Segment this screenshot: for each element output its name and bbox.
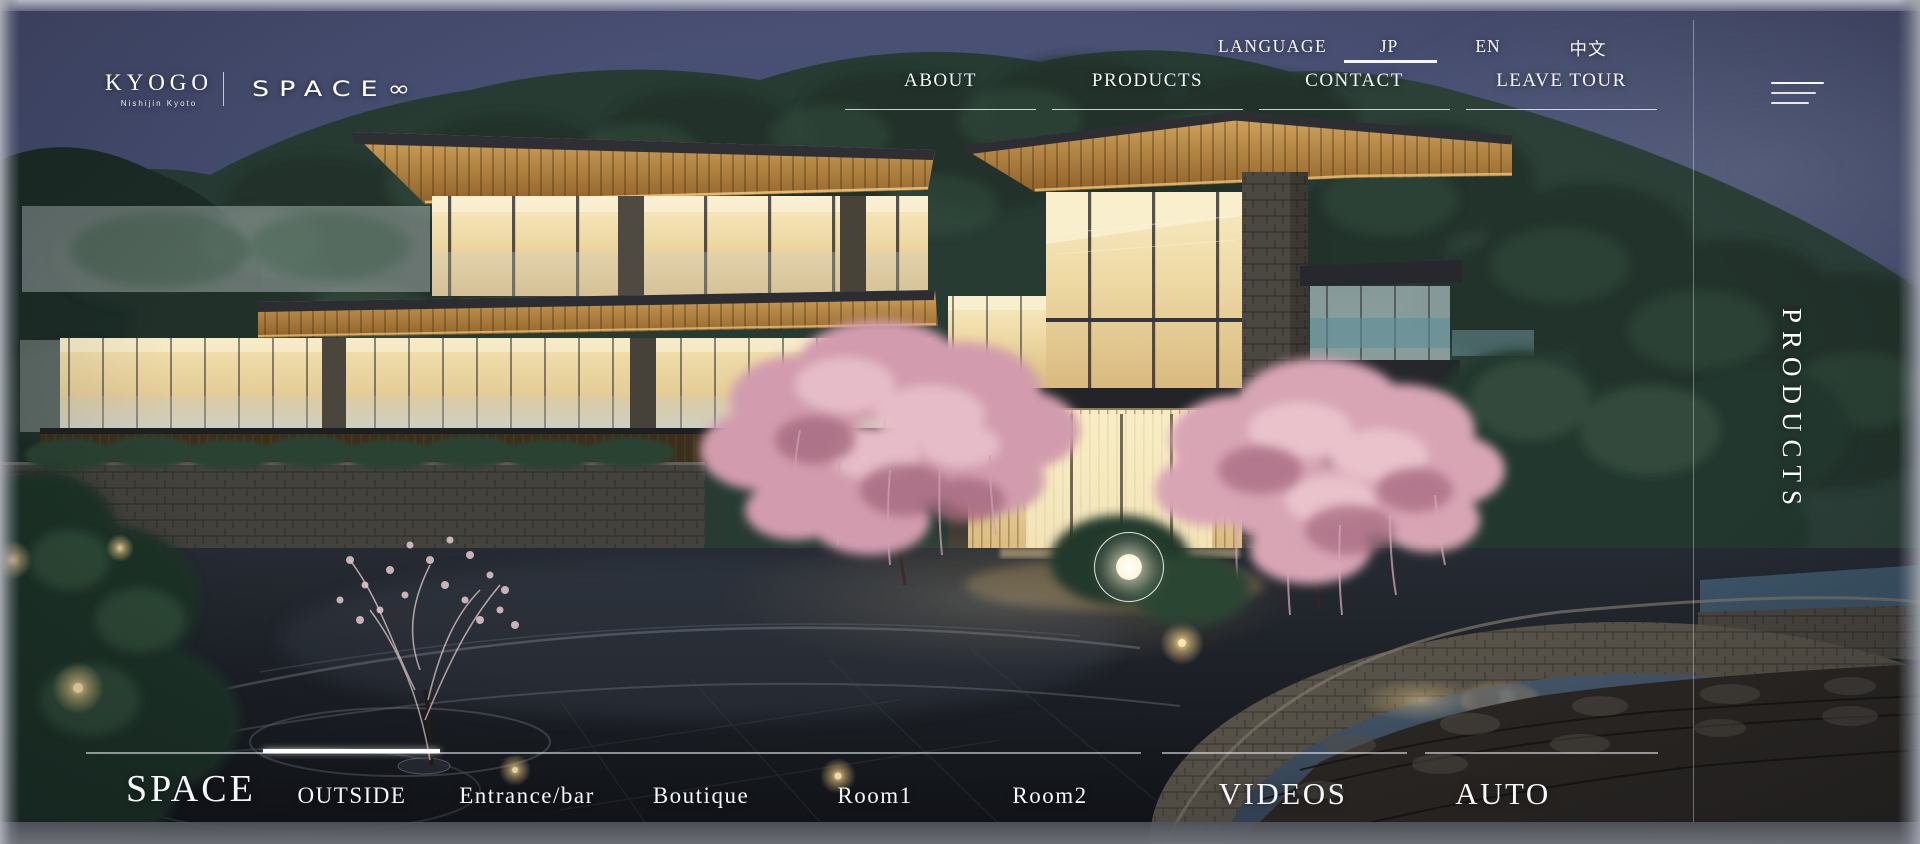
nav-item-contact[interactable]: CONTACT [1259, 70, 1450, 110]
main-nav: ABOUT PRODUCTS CONTACT LEAVE TOUR [845, 70, 1657, 110]
frame-right-edge [1898, 0, 1920, 844]
language-label: LANGUAGE [1218, 36, 1327, 57]
kyogo-logo: KYOGO [104, 70, 214, 96]
bottom-rule [1162, 752, 1407, 754]
menu-icon[interactable] [1771, 82, 1824, 112]
language-option-zh[interactable]: 中文 [1570, 36, 1607, 61]
bottom-nav-space[interactable]: SPACE [126, 767, 256, 811]
bottom-nav-videos[interactable]: VIDEOS [1219, 776, 1348, 812]
nav-item-about[interactable]: ABOUT [845, 70, 1036, 110]
menu-line [1771, 92, 1816, 94]
bottom-rule [86, 752, 1141, 754]
space-infinity-logo[interactable]: SPACE∞ [252, 77, 420, 102]
active-language-underline [1344, 60, 1437, 63]
bottom-nav-entrance-bar[interactable]: Entrance/bar [459, 783, 594, 809]
frame-bottom-edge [0, 822, 1920, 844]
vertical-products-label: PRODUCTS [1776, 308, 1807, 513]
active-section-indicator [263, 749, 440, 753]
language-option-jp[interactable]: JP [1380, 36, 1399, 57]
brand-divider [223, 72, 224, 106]
language-option-en[interactable]: EN [1475, 36, 1500, 57]
frame-top-edge [0, 0, 1920, 11]
bottom-nav-room1[interactable]: Room1 [837, 783, 912, 809]
bottom-nav-outside[interactable]: OUTSIDE [298, 783, 407, 809]
brand-lockup[interactable]: KYOGO Nishijin Kyoto [104, 70, 214, 108]
nav-item-leave-tour[interactable]: LEAVE TOUR [1466, 70, 1657, 110]
bottom-nav-room2[interactable]: Room2 [1012, 783, 1087, 809]
bottom-nav-auto[interactable]: AUTO [1455, 776, 1551, 812]
menu-line [1771, 102, 1809, 104]
page: KYOGO Nishijin Kyoto SPACE∞ LANGUAGE JP … [0, 0, 1920, 844]
hotspot-dot-icon [1116, 554, 1142, 580]
bottom-rule [1425, 752, 1658, 754]
right-keyline [1693, 20, 1694, 822]
frame-left-edge [0, 0, 20, 844]
bottom-nav-boutique[interactable]: Boutique [653, 783, 749, 809]
menu-line [1771, 82, 1824, 84]
tour-hotspot-button[interactable] [1094, 532, 1164, 602]
hero-scene [0, 0, 1920, 844]
nav-item-products[interactable]: PRODUCTS [1052, 70, 1243, 110]
kyogo-subtitle: Nishijin Kyoto [104, 99, 214, 108]
